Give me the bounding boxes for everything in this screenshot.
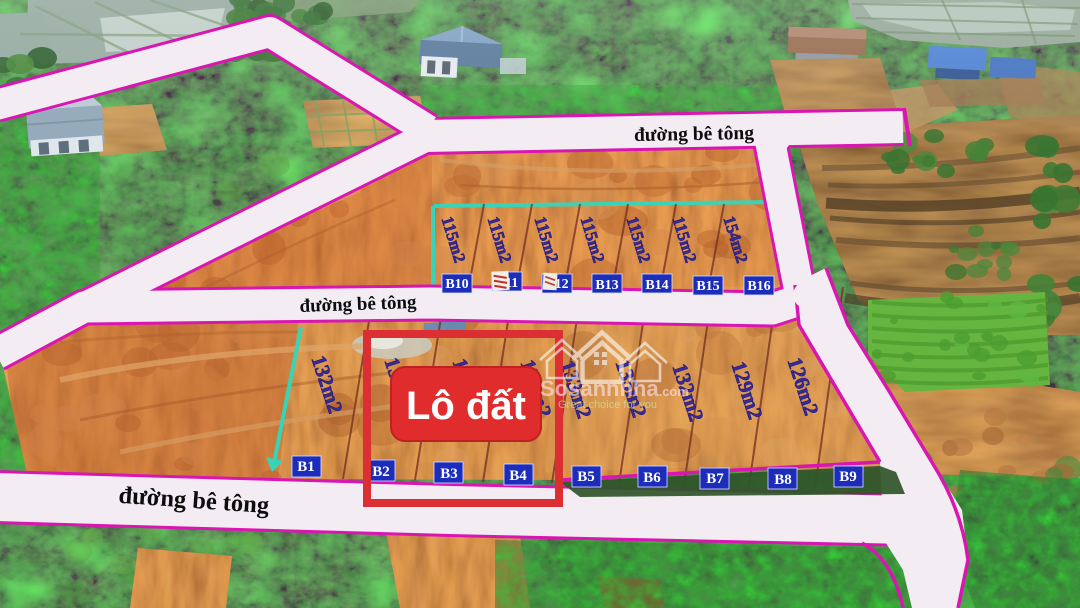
svg-text:Great choice for you: Great choice for you (558, 399, 657, 411)
svg-text:B15: B15 (696, 279, 719, 294)
svg-text:B16: B16 (747, 279, 770, 294)
svg-text:B3: B3 (440, 466, 458, 482)
svg-text:B6: B6 (643, 470, 661, 486)
svg-text:B8: B8 (774, 472, 792, 488)
svg-text:B9: B9 (839, 469, 857, 485)
svg-text:B14: B14 (645, 278, 668, 293)
svg-text:B10: B10 (445, 277, 468, 292)
svg-text:Lô đất: Lô đất (406, 384, 526, 428)
svg-text:B7: B7 (706, 471, 724, 487)
svg-text:B5: B5 (577, 469, 595, 485)
svg-text:B1: B1 (297, 459, 315, 475)
svg-text:đường bê tông: đường bê tông (299, 292, 417, 317)
svg-text:B2: B2 (372, 464, 390, 480)
svg-text:đường bê tông: đường bê tông (634, 123, 755, 146)
svg-text:B13: B13 (595, 278, 618, 293)
svg-text:B4: B4 (509, 468, 527, 484)
